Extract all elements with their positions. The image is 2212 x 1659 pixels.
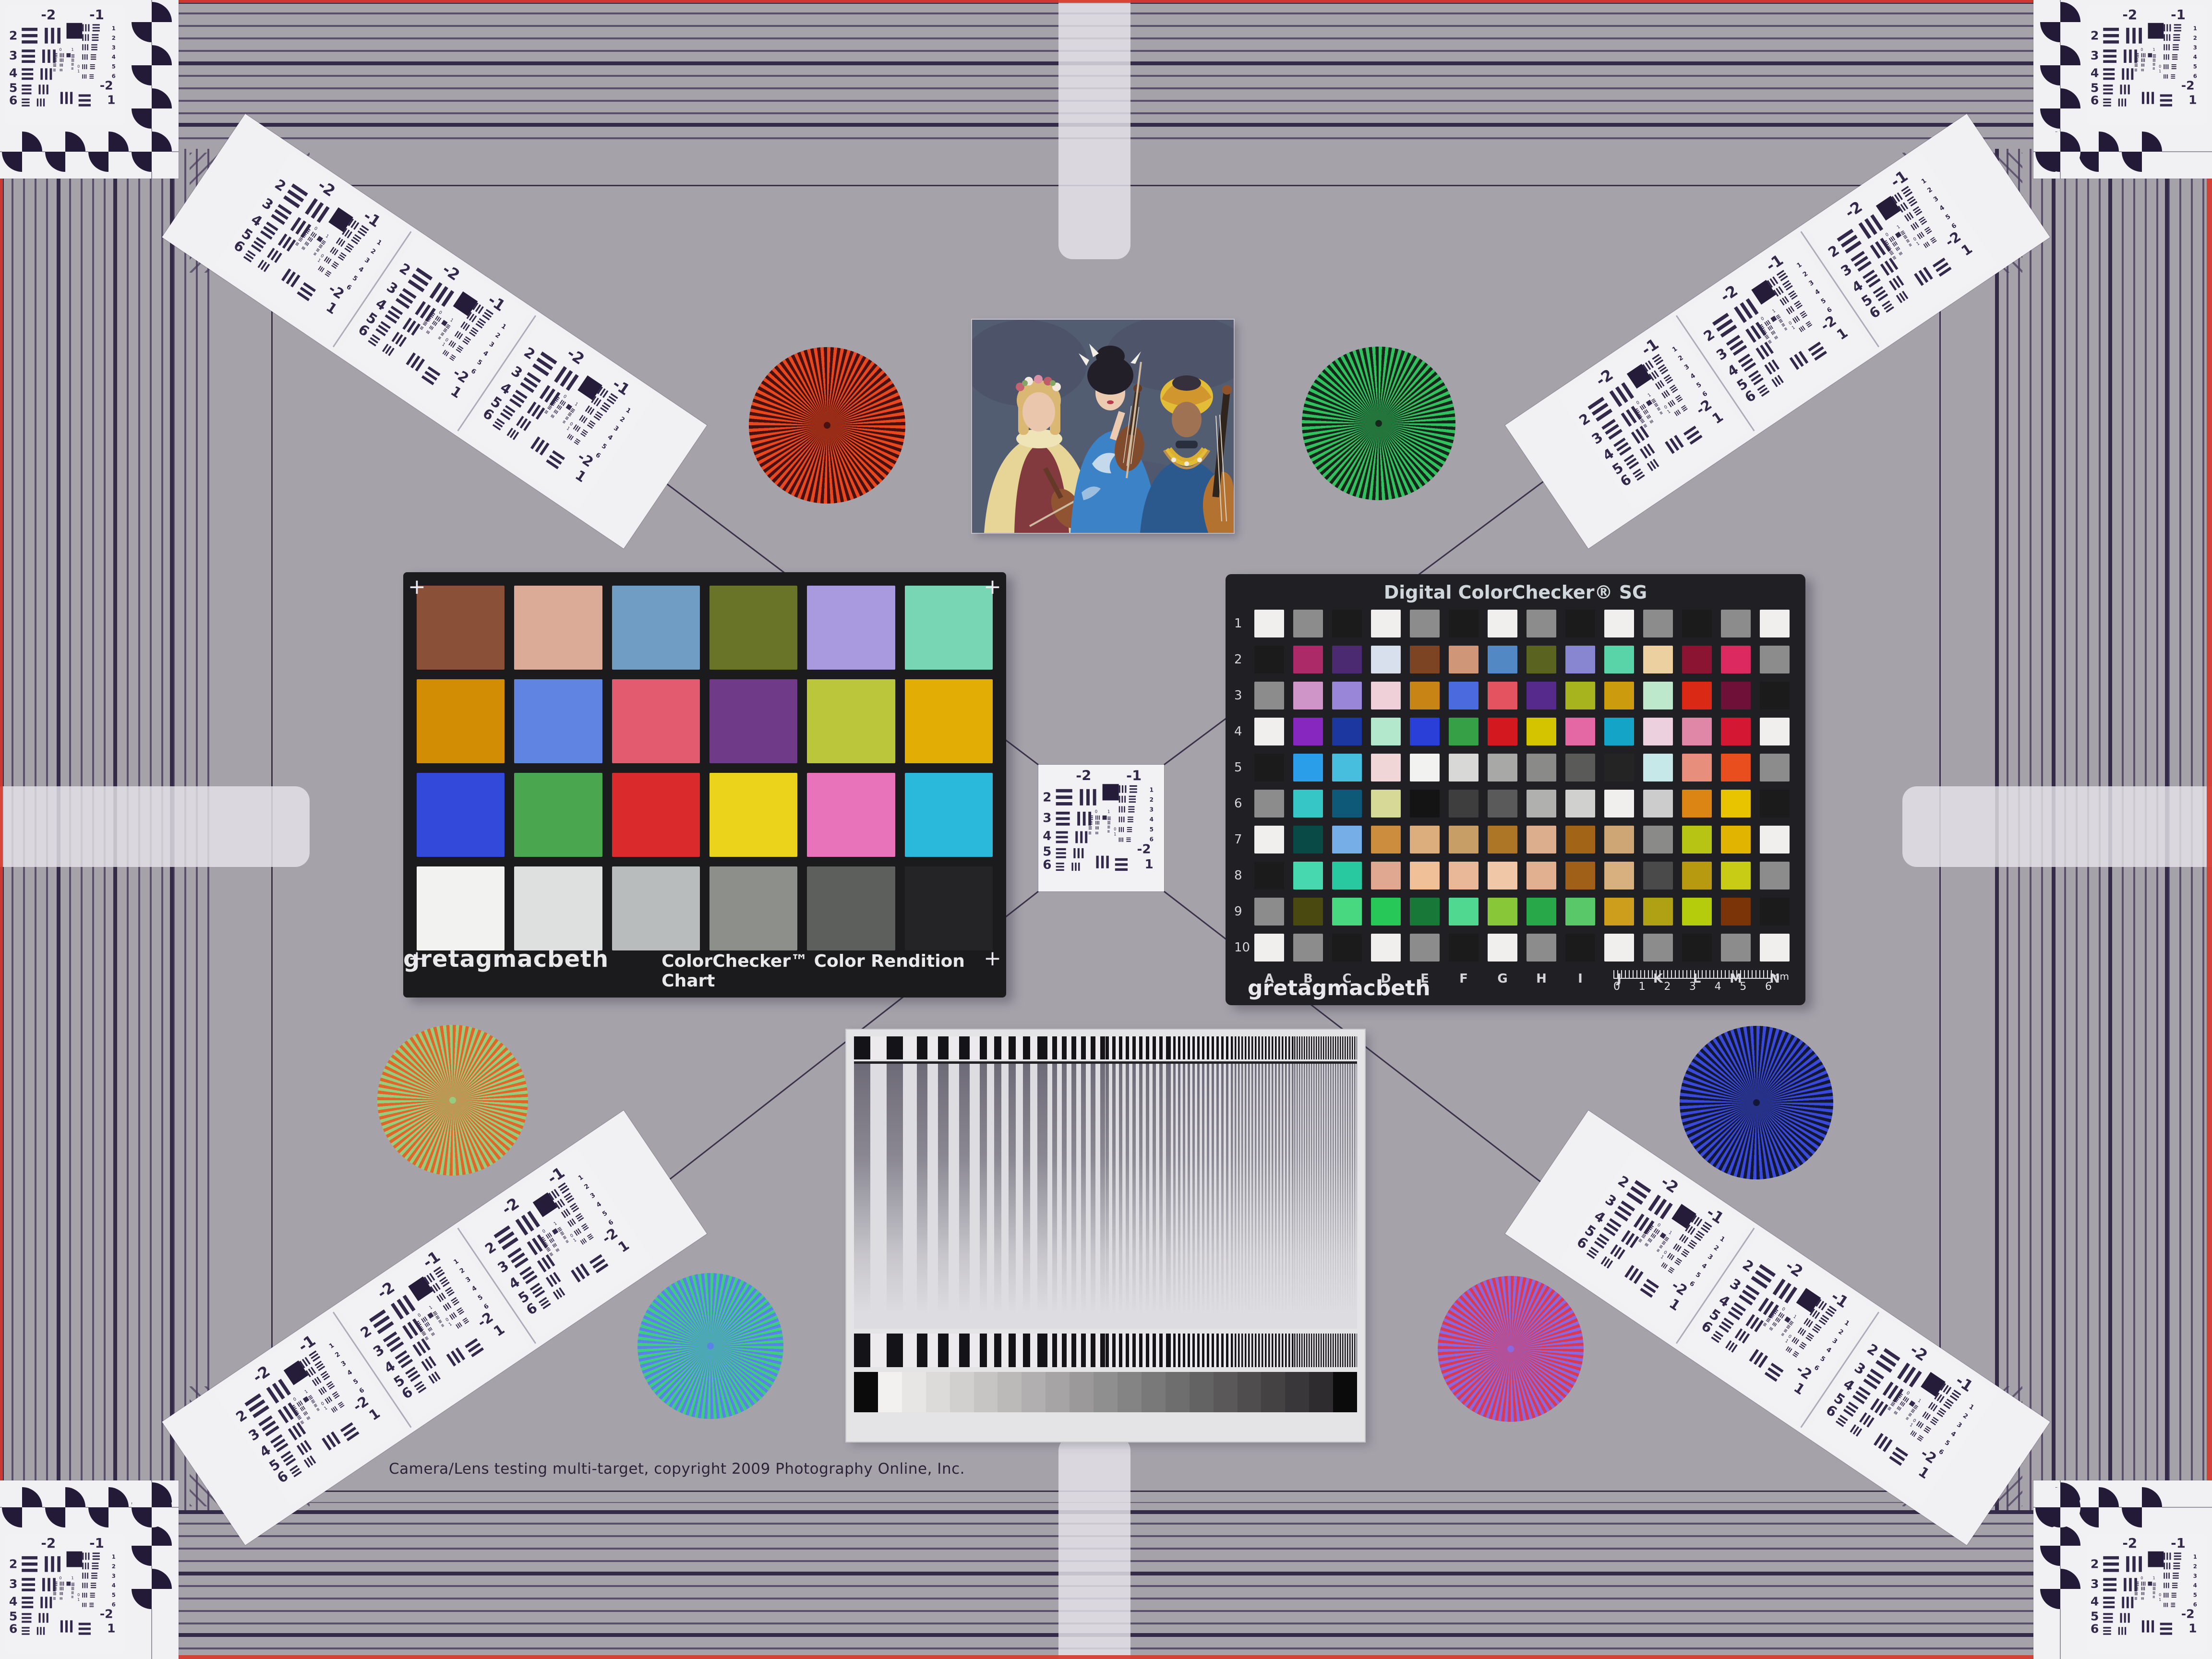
gray-step bbox=[854, 1372, 878, 1412]
sg-patch bbox=[1721, 862, 1751, 890]
resolution-strip-bottom-left bbox=[162, 1110, 707, 1545]
sg-patch bbox=[1410, 790, 1440, 817]
sg-grid bbox=[1254, 610, 1790, 962]
ruler-number: 2 bbox=[1664, 981, 1671, 993]
colorchecker-patch bbox=[612, 866, 700, 950]
red-edge-right bbox=[2207, 0, 2212, 1659]
sg-patch bbox=[1449, 862, 1479, 890]
sg-patch bbox=[1527, 898, 1556, 926]
sweep-segment bbox=[1168, 1036, 1231, 1059]
colorchecker-patch bbox=[709, 773, 797, 857]
sg-row-number: 3 bbox=[1234, 682, 1250, 709]
sg-patch bbox=[1449, 790, 1479, 817]
sg-column-letter: I bbox=[1565, 972, 1595, 986]
sg-patch bbox=[1254, 862, 1284, 890]
star-center-dot bbox=[824, 422, 830, 429]
sg-patch bbox=[1488, 790, 1517, 817]
teal-star bbox=[637, 1273, 783, 1419]
gray-step bbox=[1046, 1372, 1070, 1412]
gray-step bbox=[902, 1372, 926, 1412]
registration-plus-icon: + bbox=[408, 951, 426, 966]
sg-patch bbox=[1643, 790, 1673, 817]
registration-plus-icon: + bbox=[408, 580, 426, 594]
sg-patch bbox=[1332, 934, 1362, 962]
colorchecker-patch bbox=[612, 586, 700, 670]
sg-patch bbox=[1760, 934, 1790, 962]
sg-patch bbox=[1721, 898, 1751, 926]
sg-ruler: 0123456 bbox=[1613, 970, 1772, 993]
contrast-fade-overlay bbox=[854, 1064, 1357, 1329]
sg-patch bbox=[1254, 646, 1284, 673]
sg-row-number: 8 bbox=[1234, 862, 1250, 890]
sg-patch bbox=[1527, 718, 1556, 745]
sg-patch bbox=[1410, 718, 1440, 745]
sg-patch bbox=[1721, 934, 1751, 962]
sg-patch bbox=[1293, 754, 1323, 781]
sg-row-number: 6 bbox=[1234, 790, 1250, 817]
ruler-number: 5 bbox=[1740, 981, 1746, 993]
sg-patch bbox=[1527, 862, 1556, 890]
fiducial-circle bbox=[2040, 88, 2080, 129]
ruler-number: 4 bbox=[1715, 981, 1721, 993]
sg-patch bbox=[1410, 934, 1440, 962]
multi-target-test-chart: gretagmacbeth ColorChecker™ Color Rendit… bbox=[0, 0, 2212, 1659]
sg-patch bbox=[1332, 826, 1362, 854]
colorchecker-patch bbox=[417, 679, 505, 763]
alignment-bar-top bbox=[1058, 0, 1130, 259]
star-center-dot bbox=[1375, 420, 1382, 427]
sg-row-number: 2 bbox=[1234, 646, 1250, 673]
sweep-segment bbox=[1106, 1334, 1168, 1367]
sg-patch bbox=[1449, 610, 1479, 637]
sg-patch bbox=[1565, 826, 1595, 854]
sg-patch bbox=[1565, 862, 1595, 890]
ruler-number: 0 bbox=[1613, 981, 1620, 993]
sg-row-number: 5 bbox=[1234, 754, 1250, 781]
colorchecker-patch bbox=[807, 679, 895, 763]
blue-star bbox=[1680, 1026, 1833, 1179]
red-edge-bottom bbox=[0, 1655, 2212, 1659]
gray-step bbox=[1094, 1372, 1118, 1412]
resolution-strip-top-right bbox=[1505, 114, 2050, 549]
sg-patch bbox=[1293, 898, 1323, 926]
sg-patch bbox=[1760, 898, 1790, 926]
sweep-segment bbox=[854, 1036, 917, 1059]
registration-plus-icon: + bbox=[984, 951, 1001, 966]
gray-step bbox=[1238, 1372, 1262, 1412]
ruler-number: 6 bbox=[1765, 981, 1772, 993]
sg-patch bbox=[1332, 898, 1362, 926]
gray-step bbox=[1333, 1372, 1357, 1412]
sg-patch bbox=[1293, 790, 1323, 817]
sg-column-letter: F bbox=[1449, 972, 1479, 986]
alignment-bar-bottom bbox=[1058, 1436, 1130, 1659]
sweep-segment bbox=[1043, 1334, 1106, 1367]
gray-step bbox=[1142, 1372, 1166, 1412]
ruler-number: 3 bbox=[1689, 981, 1696, 993]
square-wave-sweep-top bbox=[854, 1036, 1357, 1059]
colorchecker-patch bbox=[709, 866, 797, 950]
sg-patch bbox=[1604, 646, 1634, 673]
star-center-dot bbox=[1753, 1099, 1760, 1106]
colorchecker-grid bbox=[417, 586, 993, 950]
sg-row-number: 1 bbox=[1234, 610, 1250, 637]
sg-patch bbox=[1721, 754, 1751, 781]
ruler-numbers: 0123456 bbox=[1613, 981, 1772, 993]
sg-patch bbox=[1371, 610, 1401, 637]
sg-row-number: 4 bbox=[1234, 718, 1250, 745]
fiducial-circle bbox=[2122, 1487, 2162, 1527]
gray-step bbox=[1190, 1372, 1214, 1412]
gray-step bbox=[1166, 1372, 1190, 1412]
sg-patch bbox=[1254, 934, 1284, 962]
usaf-cell bbox=[5, 1533, 126, 1654]
ruler-number: 1 bbox=[1639, 981, 1646, 993]
sg-patch bbox=[1371, 826, 1401, 854]
fiducial-circle bbox=[45, 1487, 85, 1527]
colorchecker-patch bbox=[417, 586, 505, 670]
sg-patch bbox=[1604, 826, 1634, 854]
digital-colorchecker-sg-chart: Digital ColorChecker® SG 12345678910 ABC… bbox=[1226, 574, 1805, 1005]
sg-patch bbox=[1760, 718, 1790, 745]
fiducial-circle bbox=[2079, 1487, 2119, 1527]
fiducial-circle bbox=[132, 2, 172, 42]
gray-step bbox=[974, 1372, 998, 1412]
sg-patch bbox=[1682, 718, 1712, 745]
sg-title: Digital ColorChecker® SG bbox=[1226, 582, 1805, 603]
sg-patch bbox=[1721, 790, 1751, 817]
sweep-segment bbox=[980, 1036, 1043, 1059]
sg-patch bbox=[1332, 646, 1362, 673]
fiducial-circle bbox=[2079, 132, 2119, 172]
sweep-segment bbox=[1294, 1334, 1357, 1367]
fiducial-circle bbox=[45, 132, 85, 172]
sg-patch bbox=[1527, 790, 1556, 817]
sg-patch bbox=[1721, 826, 1751, 854]
usaf-cell bbox=[2086, 5, 2207, 126]
fiducial-circle bbox=[2040, 2, 2080, 42]
gray-step bbox=[1261, 1372, 1285, 1412]
corner-resolution-card-top-left bbox=[0, 0, 179, 179]
sg-patch bbox=[1254, 682, 1284, 709]
sg-patch bbox=[1488, 754, 1517, 781]
sg-patch bbox=[1332, 682, 1362, 709]
sg-patch bbox=[1371, 718, 1401, 745]
magenta-star bbox=[1438, 1276, 1584, 1422]
registration-plus-icon: + bbox=[984, 580, 1001, 594]
sg-patch bbox=[1721, 718, 1751, 745]
sg-patch bbox=[1371, 934, 1401, 962]
colorchecker-patch bbox=[514, 679, 602, 763]
sg-patch bbox=[1760, 826, 1790, 854]
sg-patch bbox=[1254, 826, 1284, 854]
colorchecker-patch bbox=[612, 679, 700, 763]
sg-row-numbers: 12345678910 bbox=[1234, 610, 1250, 962]
sg-patch bbox=[1565, 682, 1595, 709]
usaf-cell bbox=[2086, 1533, 2207, 1654]
sg-patch bbox=[1760, 754, 1790, 781]
sg-patch bbox=[1682, 790, 1712, 817]
sweep-segment bbox=[1043, 1036, 1106, 1059]
colorchecker-patch bbox=[905, 866, 993, 950]
fiducial-circle bbox=[132, 1526, 172, 1566]
sweep-segment bbox=[917, 1036, 980, 1059]
sg-patch bbox=[1254, 898, 1284, 926]
sg-patch bbox=[1527, 826, 1556, 854]
sg-patch bbox=[1410, 610, 1440, 637]
colorchecker-patch bbox=[905, 773, 993, 857]
fiducial-circle bbox=[88, 132, 129, 172]
sg-patch bbox=[1488, 682, 1517, 709]
colorchecker-patch bbox=[417, 866, 505, 950]
sg-patch bbox=[1371, 862, 1401, 890]
fiducial-circle bbox=[2122, 132, 2162, 172]
colorchecker-patch bbox=[514, 586, 602, 670]
sg-patch bbox=[1682, 610, 1712, 637]
fiducial-circle bbox=[88, 1487, 129, 1527]
sg-patch bbox=[1410, 826, 1440, 854]
red-edge-left bbox=[0, 0, 3, 1659]
colorchecker-patch bbox=[514, 866, 602, 950]
corner-resolution-card-bottom-left bbox=[0, 1480, 179, 1659]
fiducial-circle bbox=[132, 132, 172, 172]
colorchecker-patch bbox=[905, 679, 993, 763]
red-star bbox=[749, 347, 905, 504]
fiducial-circle bbox=[132, 1569, 172, 1609]
sg-patch bbox=[1488, 646, 1517, 673]
sg-patch bbox=[1643, 862, 1673, 890]
colorchecker-patch bbox=[417, 773, 505, 857]
sg-patch bbox=[1682, 682, 1712, 709]
sg-patch bbox=[1643, 718, 1673, 745]
gray-step bbox=[1285, 1372, 1309, 1412]
colorchecker-patch bbox=[709, 586, 797, 670]
sg-patch bbox=[1565, 646, 1595, 673]
colorchecker-patch bbox=[807, 773, 895, 857]
sg-patch bbox=[1488, 934, 1517, 962]
sg-patch bbox=[1449, 646, 1479, 673]
sg-patch bbox=[1293, 826, 1323, 854]
sg-patch bbox=[1488, 826, 1517, 854]
sg-patch bbox=[1760, 610, 1790, 637]
sg-column-letter: H bbox=[1527, 972, 1556, 986]
sg-patch bbox=[1449, 826, 1479, 854]
sg-patch bbox=[1721, 610, 1751, 637]
sg-patch bbox=[1604, 790, 1634, 817]
sg-patch bbox=[1293, 610, 1323, 637]
green-star bbox=[1302, 347, 1455, 500]
resolution-strip-top-left bbox=[162, 114, 707, 549]
ruler-unit: mm bbox=[1770, 971, 1789, 982]
sg-patch bbox=[1604, 682, 1634, 709]
sg-patch bbox=[1682, 898, 1712, 926]
colorchecker-patch bbox=[807, 586, 895, 670]
gray-step bbox=[998, 1372, 1022, 1412]
center-resolution-target bbox=[1038, 765, 1164, 891]
copyright-text: Camera/Lens testing multi-target, copyri… bbox=[389, 1460, 965, 1478]
sg-patch bbox=[1604, 718, 1634, 745]
sweep-segment bbox=[1294, 1036, 1357, 1059]
sg-patch bbox=[1410, 862, 1440, 890]
sweep-segment bbox=[854, 1334, 917, 1367]
sg-patch bbox=[1371, 790, 1401, 817]
sg-patch bbox=[1565, 718, 1595, 745]
sweep-segment bbox=[1106, 1036, 1168, 1059]
gray-step bbox=[1118, 1372, 1142, 1412]
sg-column-letter: G bbox=[1488, 972, 1517, 986]
fiducial-circle bbox=[132, 45, 172, 85]
sg-patch bbox=[1643, 610, 1673, 637]
sg-patch bbox=[1254, 754, 1284, 781]
sg-patch bbox=[1254, 790, 1284, 817]
sg-patch bbox=[1721, 646, 1751, 673]
sg-patch bbox=[1527, 934, 1556, 962]
sg-patch bbox=[1682, 754, 1712, 781]
sg-patch bbox=[1254, 610, 1284, 637]
gray-step bbox=[1309, 1372, 1333, 1412]
sg-patch bbox=[1449, 754, 1479, 781]
frequency-sweep-chart bbox=[846, 1030, 1365, 1442]
fiducial-circle bbox=[132, 88, 172, 129]
sg-patch bbox=[1293, 646, 1323, 673]
sg-patch bbox=[1332, 610, 1362, 637]
colorchecker-patch bbox=[709, 679, 797, 763]
fiducial-circle bbox=[2040, 1569, 2080, 1609]
sg-patch bbox=[1332, 754, 1362, 781]
sg-patch bbox=[1604, 754, 1634, 781]
fiducial-circle bbox=[2, 132, 42, 172]
sg-patch bbox=[1604, 934, 1634, 962]
usaf-cell bbox=[5, 5, 126, 126]
sg-patch bbox=[1643, 826, 1673, 854]
star-center-dot bbox=[449, 1097, 456, 1104]
sg-patch bbox=[1760, 646, 1790, 673]
colorchecker-brand: gretagmacbeth bbox=[403, 946, 609, 973]
sg-patch bbox=[1332, 718, 1362, 745]
gray-step bbox=[1214, 1372, 1238, 1412]
fiducial-circle bbox=[132, 1487, 172, 1527]
red-edge-top bbox=[0, 0, 2212, 3]
sg-patch bbox=[1293, 934, 1323, 962]
colorchecker-patch bbox=[807, 866, 895, 950]
star-center-dot bbox=[1507, 1346, 1514, 1352]
colorchecker-title: ColorChecker™ Color Rendition Chart bbox=[661, 951, 1006, 991]
sweep-segment bbox=[980, 1334, 1043, 1367]
sg-patch bbox=[1332, 790, 1362, 817]
sg-patch bbox=[1371, 682, 1401, 709]
sg-patch bbox=[1565, 934, 1595, 962]
sg-patch bbox=[1565, 898, 1595, 926]
gold-star bbox=[377, 1025, 528, 1176]
sg-patch bbox=[1488, 898, 1517, 926]
sg-patch bbox=[1643, 682, 1673, 709]
sg-patch bbox=[1527, 610, 1556, 637]
corner-resolution-card-top-right bbox=[2033, 0, 2212, 179]
sg-patch bbox=[1721, 682, 1751, 709]
sg-patch bbox=[1371, 646, 1401, 673]
sg-patch bbox=[1488, 610, 1517, 637]
colorchecker-patch bbox=[612, 773, 700, 857]
square-wave-sweep-bottom bbox=[854, 1334, 1357, 1367]
sg-patch bbox=[1410, 682, 1440, 709]
colorchecker-patch bbox=[905, 586, 993, 670]
colorchecker-patch bbox=[514, 773, 602, 857]
sweep-segment bbox=[917, 1334, 980, 1367]
sg-patch bbox=[1488, 718, 1517, 745]
sg-patch bbox=[1254, 718, 1284, 745]
gray-step bbox=[1022, 1372, 1046, 1412]
sg-row-number: 9 bbox=[1234, 898, 1250, 926]
portrait-test-photo bbox=[972, 320, 1234, 533]
corner-resolution-card-bottom-right bbox=[2033, 1480, 2212, 1659]
sg-patch bbox=[1488, 862, 1517, 890]
sg-patch bbox=[1604, 610, 1634, 637]
alignment-bar-left bbox=[0, 786, 310, 867]
sg-patch bbox=[1293, 682, 1323, 709]
sg-patch bbox=[1293, 862, 1323, 890]
sg-patch bbox=[1643, 754, 1673, 781]
sg-patch bbox=[1332, 862, 1362, 890]
fiducial-circle bbox=[2040, 1526, 2080, 1566]
star-center-dot bbox=[707, 1343, 714, 1349]
sg-patch bbox=[1604, 898, 1634, 926]
sg-patch bbox=[1410, 754, 1440, 781]
fiducial-circle bbox=[2040, 1487, 2080, 1527]
sg-patch bbox=[1527, 646, 1556, 673]
colorchecker-24-chart: gretagmacbeth ColorChecker™ Color Rendit… bbox=[403, 572, 1006, 998]
sg-patch bbox=[1293, 718, 1323, 745]
sg-patch bbox=[1565, 754, 1595, 781]
sg-patch bbox=[1527, 682, 1556, 709]
sg-patch bbox=[1643, 934, 1673, 962]
sg-patch bbox=[1760, 682, 1790, 709]
sg-patch bbox=[1371, 898, 1401, 926]
sg-patch bbox=[1760, 790, 1790, 817]
sg-patch bbox=[1449, 718, 1479, 745]
gray-step bbox=[926, 1372, 950, 1412]
sweep-segment bbox=[1231, 1036, 1294, 1059]
gray-step bbox=[950, 1372, 974, 1412]
fiducial-circle bbox=[2040, 45, 2080, 85]
sg-patch bbox=[1760, 862, 1790, 890]
sg-patch bbox=[1410, 646, 1440, 673]
sg-patch bbox=[1682, 934, 1712, 962]
sg-patch bbox=[1565, 610, 1595, 637]
sg-patch bbox=[1449, 682, 1479, 709]
sg-patch bbox=[1371, 754, 1401, 781]
sg-patch bbox=[1682, 646, 1712, 673]
sweep-segment bbox=[1231, 1334, 1294, 1367]
sg-patch bbox=[1682, 826, 1712, 854]
sine-sweep-field bbox=[854, 1064, 1357, 1329]
sg-patch bbox=[1449, 898, 1479, 926]
sg-row-number: 10 bbox=[1234, 934, 1250, 962]
sg-patch bbox=[1682, 862, 1712, 890]
sg-patch bbox=[1565, 790, 1595, 817]
sg-patch bbox=[1643, 646, 1673, 673]
gray-step bbox=[878, 1372, 902, 1412]
sweep-segment bbox=[1168, 1334, 1231, 1367]
fiducial-circle bbox=[2, 1487, 42, 1527]
gray-step bbox=[1070, 1372, 1094, 1412]
fiducial-circle bbox=[2040, 132, 2080, 172]
sg-patch bbox=[1449, 934, 1479, 962]
sg-patch bbox=[1643, 898, 1673, 926]
sg-row-number: 7 bbox=[1234, 826, 1250, 854]
alignment-bar-right bbox=[1902, 786, 2212, 867]
ruler-ticks bbox=[1613, 970, 1772, 979]
sg-patch bbox=[1604, 862, 1634, 890]
